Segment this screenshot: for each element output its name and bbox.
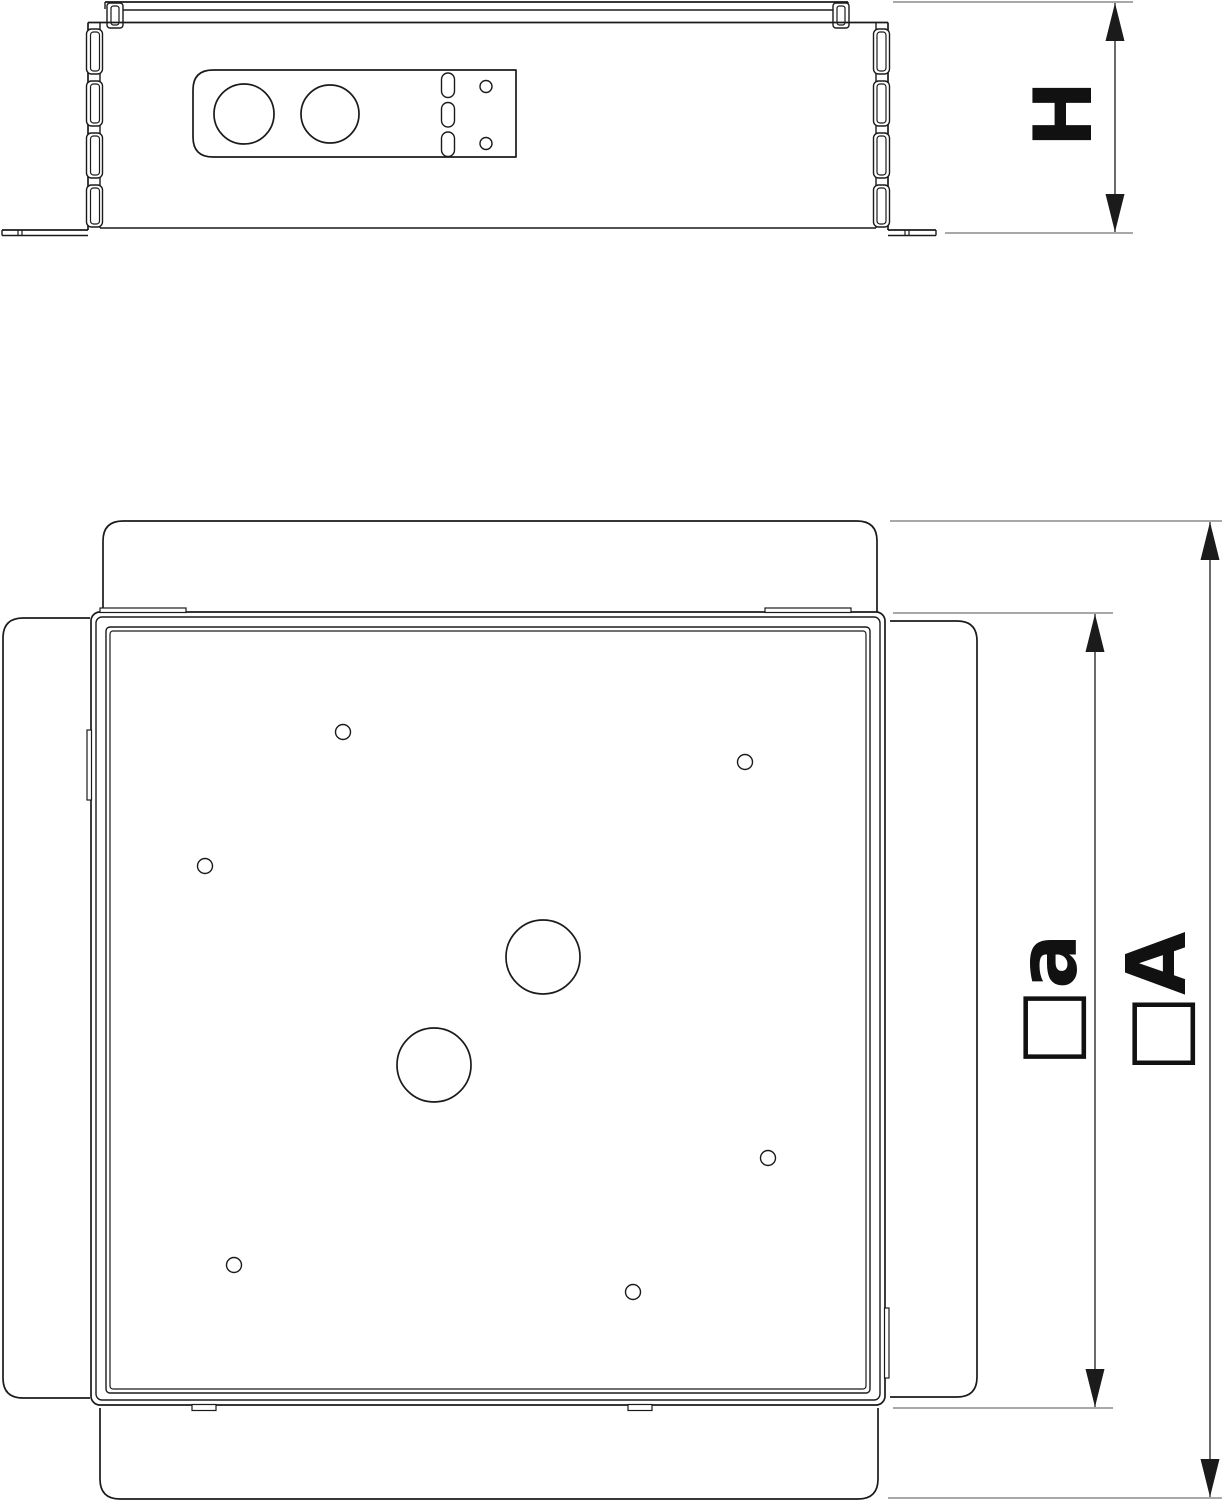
technical-drawing: H [0, 0, 1225, 1500]
plate-knockout-circle-2 [301, 85, 359, 143]
a-arrow-up [1086, 614, 1105, 652]
side-view: H [2, 2, 1133, 236]
lid-latch-left [107, 3, 123, 28]
dimension-a: □a [893, 613, 1113, 1408]
a-arrow-down [1086, 1369, 1105, 1407]
A-dimension-label: □A [1110, 931, 1205, 1072]
lid-cover [105, 2, 849, 28]
plate-screw-hole-2 [480, 138, 492, 150]
box-body-side [88, 23, 888, 231]
flange-left [3, 618, 90, 1398]
plate-slot-3 [442, 132, 455, 157]
mounting-plate [193, 70, 516, 157]
bottom-flange-right [888, 230, 936, 236]
plate-knockout-circle-1 [214, 84, 274, 144]
plate-screw-hole-1 [480, 81, 492, 93]
h-arrow-up [1106, 3, 1125, 41]
A-arrow-down [1201, 1459, 1220, 1497]
A-arrow-up [1201, 522, 1220, 560]
flange-bottom [100, 1408, 878, 1499]
lid-latch-right [833, 3, 849, 28]
drawing-canvas: H [0, 0, 1225, 1500]
dimension-h: H [893, 2, 1133, 233]
plan-view: □a □A [3, 521, 1222, 1499]
a-dimension-label: □a [1001, 934, 1096, 1067]
flange-top [103, 521, 877, 613]
flange-right [890, 621, 977, 1397]
box-walls-plan [91, 612, 885, 1405]
plate-slot-2 [442, 103, 455, 128]
bottom-flange-left [2, 230, 88, 236]
h-dimension-label: H [1017, 81, 1110, 148]
plate-slot-1 [442, 73, 455, 98]
h-arrow-down [1106, 194, 1125, 232]
